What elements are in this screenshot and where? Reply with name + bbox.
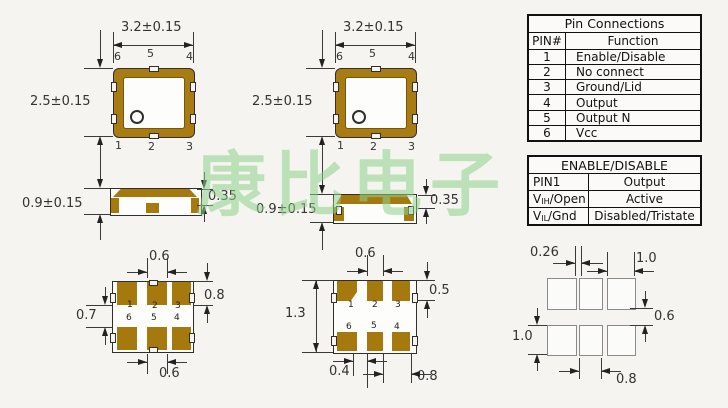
- dim-label: 0.6: [159, 366, 180, 381]
- dim-line: [415, 32, 416, 63]
- pin-condition-sub: IL: [541, 214, 548, 223]
- table-row: 2 No connect: [529, 64, 700, 79]
- pin-function: Ground/Lid: [566, 80, 700, 94]
- dim-line: [207, 314, 208, 323]
- dim-line: [100, 30, 101, 59]
- arrow-up-icon: [102, 327, 108, 336]
- dim-label: 0.6: [355, 246, 376, 261]
- arrow-left-icon: [634, 268, 643, 274]
- pin-table-header-row: PIN# Function: [529, 32, 700, 49]
- castellation-notch: [111, 114, 117, 124]
- castellation-notch: [149, 347, 158, 353]
- dim-line: [353, 354, 354, 376]
- castellation-notch: [189, 293, 195, 303]
- enable-state: Active: [589, 192, 700, 206]
- pad-number: 1: [348, 300, 354, 310]
- pin-condition-rest: /Open: [550, 192, 586, 206]
- dim-line: [84, 68, 113, 69]
- dim-line: [204, 172, 205, 180]
- dim-line: [306, 68, 335, 69]
- dim-line: [197, 189, 213, 190]
- table-row: 5 Output N: [529, 110, 700, 125]
- arrow-down-icon: [319, 59, 325, 68]
- table-row: 1 Enable/Disable: [529, 49, 700, 64]
- dim-line: [383, 354, 384, 383]
- center-pad: [146, 203, 159, 213]
- castellation-notch: [190, 82, 196, 92]
- dim-line: [194, 281, 213, 282]
- arrow-right-icon: [566, 260, 575, 266]
- arrow-right-icon: [138, 359, 147, 365]
- dim-label-width: 3.2±0.15: [343, 20, 404, 35]
- enable-pin-cell: VIH/Open: [529, 191, 589, 207]
- solder-pad: [607, 278, 636, 310]
- dim-line: [86, 327, 112, 328]
- pin-connections-table: Pin Connections PIN# Function 1 Enable/D…: [527, 14, 702, 142]
- arrow-right-icon: [570, 368, 579, 374]
- pin-label: 4: [186, 50, 193, 63]
- dim-label-height: 0.9±0.15: [256, 202, 317, 217]
- enable-table-title: ENABLE/DISABLE: [529, 157, 700, 173]
- solder-pad: [579, 278, 603, 310]
- pad-number: 6: [126, 313, 132, 323]
- land-pad: [117, 327, 137, 350]
- land-pad: [367, 281, 383, 301]
- dim-label: 0.8: [616, 372, 637, 387]
- table-row: PIN1 Output: [529, 173, 700, 190]
- arrow-down-icon: [642, 299, 648, 308]
- pin1-marker: [130, 110, 144, 124]
- dim-label: 1.0: [636, 251, 657, 266]
- dim-line: [427, 262, 428, 271]
- dim-line: [84, 188, 110, 189]
- pad-number: 4: [174, 313, 180, 323]
- arrow-up-icon: [319, 136, 325, 145]
- dim-label: 0.4: [329, 364, 350, 379]
- arrow-up-icon: [642, 325, 648, 334]
- dim-line: [113, 45, 193, 46]
- dim-label: 1.3: [285, 306, 306, 321]
- arrow-left-icon: [167, 359, 176, 365]
- dim-line: [100, 223, 101, 240]
- dim-line: [607, 252, 608, 276]
- castellation-notch: [371, 133, 381, 139]
- enable-state: Output: [589, 175, 700, 189]
- pin-function: Output: [566, 96, 700, 110]
- pad-number: 3: [175, 301, 181, 311]
- arrow-down-icon: [423, 186, 429, 195]
- dim-label-width: 3.2±0.15: [121, 20, 182, 35]
- pin-label: 3: [408, 140, 415, 153]
- package-lid: [336, 195, 412, 204]
- pin-condition: V: [533, 192, 541, 206]
- pad-number: 5: [151, 313, 157, 323]
- table-row: 3 Ground/Lid: [529, 79, 700, 94]
- pad-number: 1: [127, 300, 133, 310]
- arrow-down-icon: [97, 179, 103, 188]
- dim-line: [426, 217, 427, 224]
- castellation-notch: [149, 280, 158, 286]
- arrow-left-icon: [335, 42, 344, 48]
- pin-function: No connect: [566, 65, 700, 79]
- arrow-up-icon: [204, 305, 210, 314]
- pin-label: 2: [370, 140, 377, 153]
- arrow-left-icon: [113, 42, 122, 48]
- arrow-right-icon: [374, 371, 383, 377]
- datasheet-drawing: 3.2±0.15 2.5±0.15 6 5 4 1 2 3 3.2±0.15 2…: [0, 0, 728, 408]
- castellation-notch: [149, 133, 159, 139]
- arrow-right-icon: [358, 268, 367, 274]
- dim-line: [302, 352, 333, 353]
- dim-line: [100, 162, 101, 179]
- arrow-up-icon: [97, 136, 103, 145]
- dim-line: [418, 195, 435, 196]
- dim-label: 0.8: [204, 288, 225, 303]
- dim-line: [537, 308, 538, 316]
- arrow-down-icon: [97, 59, 103, 68]
- arrow-down-icon: [102, 296, 108, 305]
- castellation-notch: [331, 336, 337, 346]
- dim-label-height: 0.9±0.15: [22, 196, 83, 211]
- arrow-down-icon: [204, 272, 210, 281]
- dim-line: [322, 168, 323, 185]
- arrow-left-icon: [383, 268, 392, 274]
- dim-line: [204, 214, 205, 222]
- dim-line: [427, 309, 428, 318]
- pin-condition-rest: /Gnd: [548, 209, 577, 223]
- arrow-up-icon: [319, 222, 325, 231]
- castellation-notch: [111, 82, 117, 92]
- arrow-right-icon: [344, 358, 353, 364]
- land-pad: [392, 332, 410, 351]
- arrow-up-icon: [97, 214, 103, 223]
- pin-label: 6: [336, 50, 343, 63]
- dim-line: [335, 45, 415, 46]
- table-row: 6 Vcc: [529, 125, 700, 140]
- dim-line: [575, 246, 576, 276]
- solder-pad: [579, 325, 603, 356]
- arrow-left-icon: [581, 260, 590, 266]
- dim-line: [310, 194, 333, 195]
- pin1-marker: [352, 110, 366, 124]
- solder-pad: [547, 278, 577, 310]
- dim-label: 0.5: [429, 283, 450, 298]
- arrow-right-icon: [598, 268, 607, 274]
- pin-label: 1: [115, 139, 122, 152]
- arrow-left-icon: [601, 368, 610, 374]
- arrow-up-icon: [201, 205, 207, 214]
- pin-condition-sub: IH: [541, 197, 549, 206]
- dim-line: [579, 358, 580, 379]
- dim-label: 0.8: [417, 369, 438, 384]
- dim-label: 1.0: [512, 329, 533, 344]
- arrow-down-icon: [534, 316, 540, 325]
- arrow-down-icon: [201, 180, 207, 189]
- dim-line: [645, 291, 646, 299]
- castellation-notch: [371, 66, 381, 72]
- enable-pin-cell: PIN1: [529, 174, 589, 190]
- pin-table-title: Pin Connections: [529, 16, 700, 32]
- pin-label: 6: [114, 50, 121, 63]
- pad-number: 2: [372, 300, 378, 310]
- castellation-notch: [412, 114, 418, 124]
- dim-line: [105, 336, 106, 345]
- solder-pad: [607, 325, 636, 356]
- pin-function: Enable/Disable: [566, 50, 700, 64]
- castellation-notch: [189, 333, 195, 343]
- table-row: VIL/Gnd Disabled/Tristate: [529, 207, 700, 224]
- table-row: VIH/Open Active: [529, 190, 700, 207]
- dim-label: 0.7: [76, 308, 97, 323]
- land-pad: [392, 281, 410, 301]
- dim-label-height: 2.5±0.15: [252, 94, 313, 109]
- solder-pad: [547, 325, 577, 356]
- castellation-notch: [190, 114, 196, 124]
- arrow-down-icon: [319, 185, 325, 194]
- castellation-notch: [412, 82, 418, 92]
- dim-line: [645, 334, 646, 342]
- dim-label: 0.26: [530, 245, 559, 260]
- pin-number: 5: [529, 111, 566, 125]
- arrow-left-icon: [367, 358, 376, 364]
- dim-line: [630, 308, 653, 309]
- arrow-left-icon: [411, 371, 420, 377]
- dim-line: [207, 263, 208, 272]
- dim-line: [167, 258, 168, 278]
- pad-number: 2: [152, 301, 158, 311]
- dim-line: [322, 231, 323, 250]
- arrow-right-icon: [138, 269, 147, 275]
- castellation-notch: [333, 114, 339, 124]
- pad-slot: [336, 206, 342, 215]
- pin-condition: V: [533, 209, 541, 223]
- arrow-up-icon: [534, 354, 540, 363]
- pin-label: 3: [186, 140, 193, 153]
- castellation-notch: [333, 82, 339, 92]
- dim-line: [316, 280, 317, 352]
- dim-label: 0.6: [654, 309, 675, 324]
- arrow-left-icon: [167, 269, 176, 275]
- pad-number: 3: [395, 300, 401, 310]
- pin-number: 4: [529, 95, 566, 109]
- pin-label: 2: [148, 140, 155, 153]
- arrow-up-icon: [313, 280, 319, 289]
- dim-line: [367, 255, 368, 276]
- enable-pin-cell: VIL/Gnd: [529, 208, 589, 224]
- dim-line: [105, 287, 106, 296]
- land-pad: [337, 332, 357, 351]
- arrow-down-icon: [313, 343, 319, 352]
- dim-line: [147, 354, 148, 374]
- dim-line: [411, 354, 412, 383]
- arrow-up-icon: [423, 208, 429, 217]
- arrow-up-icon: [424, 300, 430, 309]
- enable-state: Disabled/Tristate: [589, 209, 700, 223]
- pin-function: Output N: [566, 111, 700, 125]
- dim-line: [147, 258, 148, 278]
- side-pad: [111, 198, 119, 213]
- arrow-right-icon: [406, 42, 415, 48]
- pad-number: 6: [346, 322, 352, 332]
- dim-line: [322, 30, 323, 59]
- dim-line: [528, 325, 547, 326]
- arrow-right-icon: [184, 42, 193, 48]
- pad-slot: [408, 206, 414, 215]
- dim-line: [193, 32, 194, 63]
- pin-label: 4: [408, 50, 415, 63]
- castellation-notch: [412, 293, 418, 303]
- pin-label: 1: [337, 139, 344, 152]
- pin-number: 6: [529, 126, 566, 140]
- dim-label-lid: 0.35: [208, 189, 237, 204]
- castellation-notch: [412, 336, 418, 346]
- arrow-down-icon: [424, 271, 430, 280]
- pin-number: 1: [529, 50, 566, 64]
- table-row: 4 Output: [529, 94, 700, 109]
- castellation-notch: [110, 333, 116, 343]
- pin-condition: PIN1: [533, 175, 560, 189]
- pin-number: 2: [529, 65, 566, 79]
- castellation-notch: [110, 293, 116, 303]
- castellation-notch: [331, 293, 337, 303]
- pin-number: 3: [529, 80, 566, 94]
- pin-function: Vcc: [566, 126, 700, 140]
- pin-label: 5: [147, 47, 154, 60]
- function-col-header: Function: [566, 34, 700, 48]
- dim-line: [426, 179, 427, 186]
- pin-col-header: PIN#: [529, 33, 566, 49]
- dim-label-height: 2.5±0.15: [30, 94, 91, 109]
- pad-number: 4: [394, 322, 400, 332]
- enable-disable-table: ENABLE/DISABLE PIN1 Output VIH/Open Acti…: [527, 155, 702, 226]
- dim-line: [417, 280, 435, 281]
- dim-line: [86, 305, 112, 306]
- pin-label: 5: [369, 47, 376, 60]
- dim-line: [537, 363, 538, 371]
- pad-number: 5: [371, 321, 377, 331]
- package-lid: [113, 189, 197, 197]
- land-pad: [367, 332, 383, 351]
- castellation-notch: [149, 66, 159, 72]
